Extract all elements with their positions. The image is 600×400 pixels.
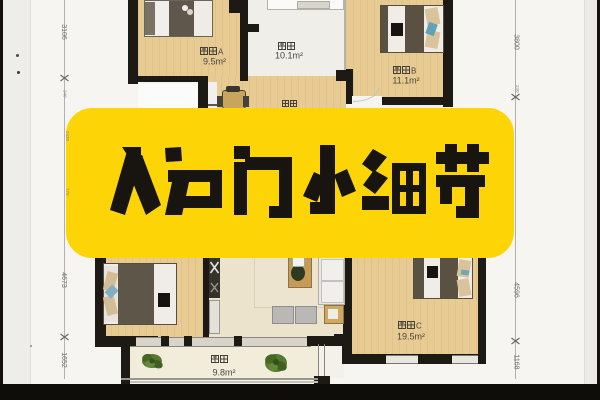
- svg-text:3106: 3106: [60, 24, 67, 40]
- svg-text:770: 770: [65, 188, 70, 196]
- svg-text:10.1m²: 10.1m²: [275, 51, 303, 61]
- svg-text:240: 240: [515, 85, 520, 93]
- svg-text:1168: 1168: [513, 354, 520, 369]
- svg-text:4673: 4673: [60, 272, 67, 288]
- svg-text:B: B: [411, 67, 416, 76]
- svg-text:C: C: [416, 322, 422, 331]
- svg-text:9.5m²: 9.5m²: [203, 57, 226, 67]
- svg-text:4596: 4596: [513, 282, 520, 298]
- svg-text:3800: 3800: [513, 34, 520, 50]
- svg-text:2430: 2430: [65, 131, 70, 142]
- svg-text:19.5m²: 19.5m²: [397, 332, 425, 342]
- svg-text:1652: 1652: [60, 352, 67, 368]
- svg-text:A: A: [218, 48, 224, 57]
- svg-text:240: 240: [63, 90, 68, 98]
- svg-text:11.1m²: 11.1m²: [392, 76, 419, 86]
- svg-text:9.8m²: 9.8m²: [212, 368, 235, 378]
